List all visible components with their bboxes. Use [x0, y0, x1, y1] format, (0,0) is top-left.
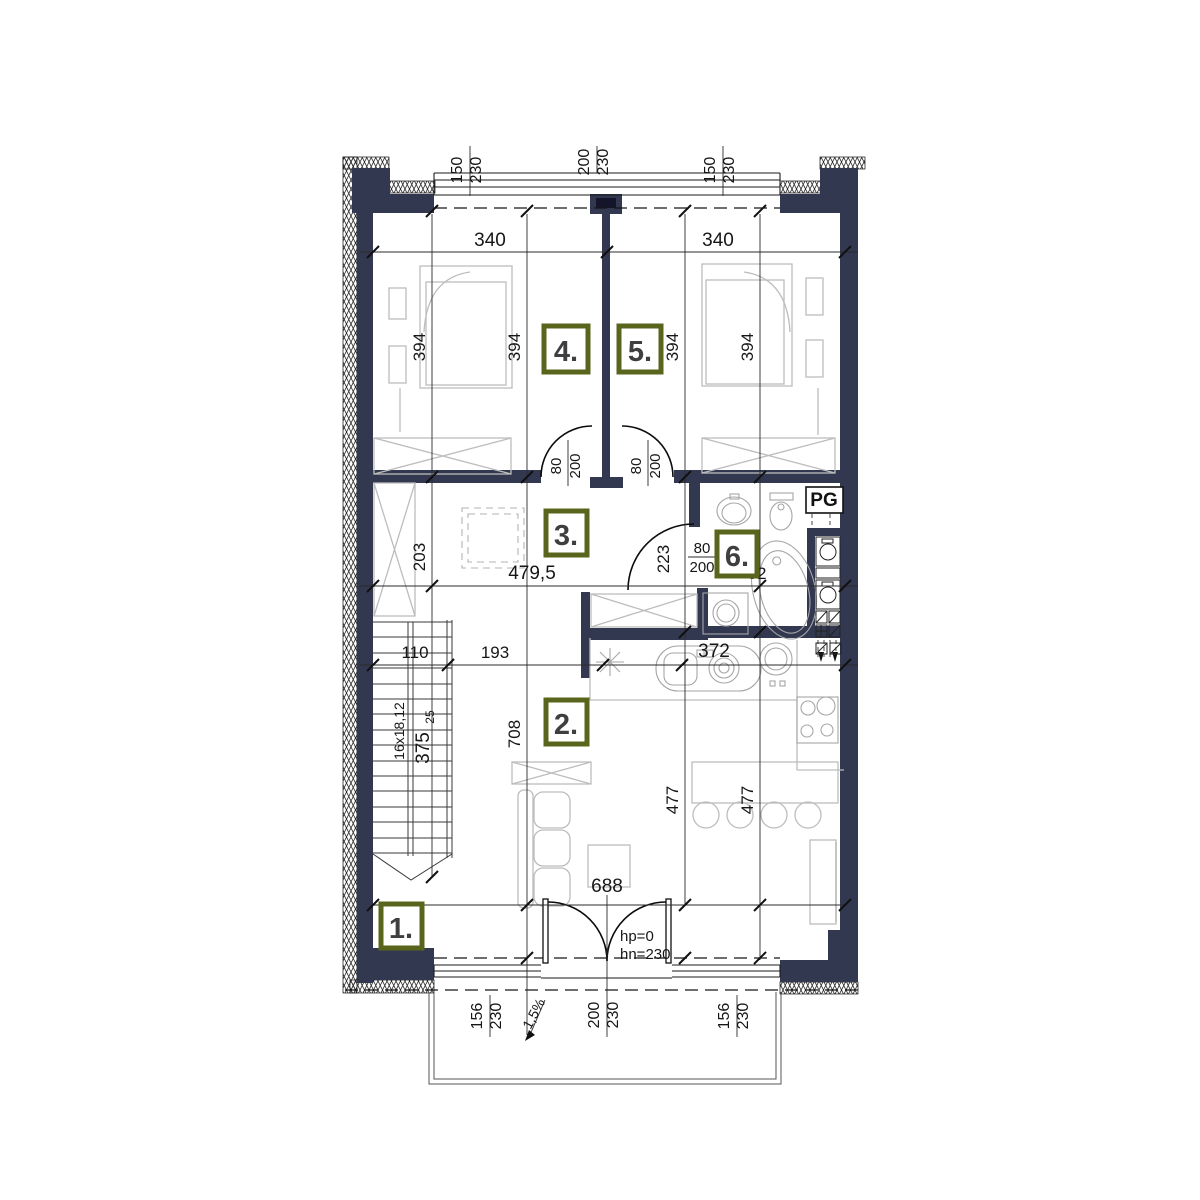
dishwasher-symbol [596, 648, 624, 676]
bed-room4 [389, 266, 512, 432]
room-label-1: 1. [381, 904, 422, 948]
win-top-left-h: 230 [468, 157, 485, 184]
wardrobe-room4 [374, 438, 511, 474]
dim-room4-depth-a: 394 [410, 333, 429, 361]
door5-width: 80 [628, 458, 645, 475]
slope-annotation: 1,5% [519, 996, 548, 1041]
win-bot-left-h: 230 [488, 1003, 505, 1030]
tv-bench [512, 762, 591, 784]
dim-chain-193: 193 [481, 643, 509, 662]
win-top-mid-w: 200 [576, 149, 593, 176]
bed-room5 [702, 264, 823, 435]
wardrobe-room5 [702, 438, 835, 473]
win-top-left-w: 150 [449, 157, 466, 184]
win-bot-right-w: 156 [716, 1003, 733, 1030]
room-label-3: 3. [546, 511, 587, 555]
dim-room4-depth-b: 394 [505, 333, 524, 361]
room-1-number: 1. [389, 913, 413, 945]
stairs-run: 375 [413, 732, 434, 764]
radiator [810, 840, 836, 924]
room-2-number: 2. [554, 709, 578, 741]
sofa [518, 790, 570, 908]
dim-living-width: 688 [591, 876, 623, 897]
entry-door-hp: hp=0 [620, 928, 654, 945]
door-bot-h: 230 [605, 1002, 622, 1029]
pg-label: PG [810, 490, 837, 511]
dim-room5-depth-a: 394 [663, 333, 682, 361]
slope-label: 1,5% [519, 996, 548, 1032]
room-label-6: 6. [717, 532, 757, 576]
dining-table [692, 762, 838, 828]
room-label-2: 2. [546, 700, 587, 744]
bath-door-width: 80 [694, 540, 711, 557]
room-4-number: 4. [554, 336, 578, 368]
dim-room4-width: 340 [474, 230, 506, 251]
window-bottom-left [434, 965, 541, 977]
floor-plan-drawing: PG [0, 0, 1200, 1200]
room-label-5: 5. [619, 326, 661, 372]
gas-meter-box: PG [806, 487, 843, 513]
door5-height: 200 [647, 453, 664, 478]
win-top-right-h: 230 [721, 157, 738, 184]
stairs-note: 16x18,12 [391, 702, 407, 760]
room-5-number: 5. [628, 336, 652, 368]
stove [797, 697, 838, 743]
door4-height: 200 [567, 453, 584, 478]
win-top-mid-h: 230 [595, 149, 612, 176]
dim-living-depth: 708 [505, 720, 524, 748]
walls [352, 168, 858, 983]
door4-width: 80 [548, 458, 565, 475]
roof-window [462, 508, 524, 568]
win-bot-left-w: 156 [469, 1003, 486, 1030]
dim-hall-depth: 203 [410, 543, 429, 571]
door-bot-w: 200 [586, 1002, 603, 1029]
bath-door-height: 200 [689, 559, 714, 576]
room-3-number: 3. [554, 520, 578, 552]
dim-room5-width: 340 [702, 230, 734, 251]
win-top-right-w: 150 [702, 157, 719, 184]
wardrobe-mid [591, 594, 697, 627]
dim-kitchen-372: 372 [698, 641, 730, 662]
bath-sink [717, 494, 751, 525]
dim-living-b: 477 [738, 786, 757, 814]
stairs-run-sup: 25 [423, 710, 437, 724]
entry-door-hn: hn=230 [620, 946, 670, 963]
wardrobe-hall-tall [374, 483, 415, 616]
win-bot-right-h: 230 [735, 1003, 752, 1030]
window-bottom-right [672, 965, 780, 977]
floor-plan-page: PG [0, 0, 1200, 1200]
room-6-number: 6. [725, 541, 749, 573]
dim-living-a: 477 [663, 786, 682, 814]
dim-hall-width: 479,5 [508, 563, 556, 584]
room-label-4: 4. [544, 326, 588, 372]
round-basin [760, 643, 792, 686]
toilet [770, 493, 793, 530]
dim-room5-depth-b: 394 [738, 333, 757, 361]
dim-chain-110: 110 [401, 643, 428, 662]
dim-bath-depth: 223 [654, 545, 673, 573]
